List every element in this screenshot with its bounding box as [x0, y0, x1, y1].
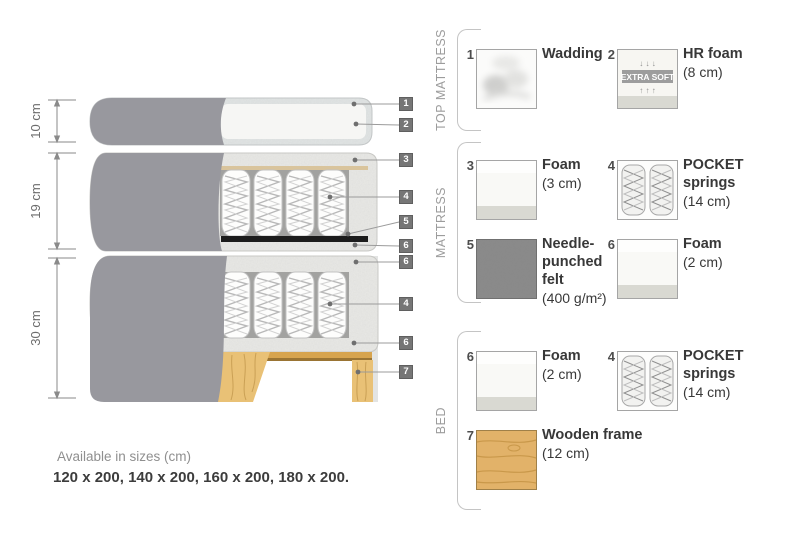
item-name: POCKET springs — [683, 347, 755, 383]
hr-foam-thumbnail: ↓ ↓ ↓ EXTRA SOFT ↑ ↑ ↑ — [617, 49, 678, 109]
dimension-lines — [48, 100, 76, 398]
marker-1: 1 — [399, 97, 413, 111]
marker-6b: 6 — [399, 255, 413, 269]
legend-num-6: 6 — [601, 237, 615, 252]
marker-6: 6 — [399, 239, 413, 253]
bed-layer — [90, 256, 378, 402]
mattress-top-foam-edge — [220, 166, 368, 170]
legend-num-6-bed: 6 — [460, 349, 474, 364]
item-name: HR foam — [683, 45, 755, 63]
marker-2: 2 — [399, 118, 413, 132]
legend-label-4-bed: POCKET springs (14 cm) — [683, 347, 755, 401]
infographic-page: { "note": { "line1": "Available in sizes… — [0, 0, 800, 533]
mattress-felt-bar — [221, 236, 368, 242]
sizes-note-values: 120 x 200, 140 x 200, 160 x 200, 180 x 2… — [53, 469, 349, 486]
sizes-note-title: Available in sizes (cm) — [57, 449, 191, 464]
item-detail: (14 cm) — [683, 383, 755, 401]
item-detail: (14 cm) — [683, 192, 755, 210]
item-detail: (2 cm) — [542, 365, 614, 383]
foam-thumbnail — [476, 351, 537, 411]
pocket-springs-thumbnail — [617, 351, 678, 411]
legend-num-2: 2 — [601, 47, 615, 62]
legend-num-3: 3 — [460, 158, 474, 173]
mattress-layer — [90, 153, 377, 251]
foam-thumbnail — [476, 160, 537, 220]
dimension-label-top-mattress: 10 cm — [28, 91, 44, 151]
item-name: POCKET springs — [683, 156, 755, 192]
section-title-text: MATTRESS — [434, 187, 448, 258]
legend-num-7: 7 — [460, 428, 474, 443]
wooden-frame-thumbnail — [476, 430, 537, 490]
item-name: Foam — [683, 235, 755, 253]
foam-thumbnail — [617, 239, 678, 299]
section-title-text: TOP MATTRESS — [434, 29, 448, 131]
legend-label-6: Foam (2 cm) — [683, 235, 755, 271]
marker-5: 5 — [399, 215, 413, 229]
felt-thumbnail — [476, 239, 537, 299]
item-name: Wooden frame — [542, 426, 702, 444]
legend-num-5: 5 — [460, 237, 474, 252]
marker-6c: 6 — [399, 336, 413, 350]
pocket-springs-thumbnail — [617, 160, 678, 220]
marker-7: 7 — [399, 365, 413, 379]
item-detail: (8 cm) — [683, 63, 755, 81]
soft-arrows-up-icon: ↑ ↑ ↑ — [639, 86, 655, 95]
section-title-text: BED — [434, 407, 448, 434]
section-title-top-mattress: TOP MATTRESS — [429, 29, 453, 131]
section-title-mattress: MATTRESS — [429, 142, 453, 303]
top-mattress-layer — [90, 98, 372, 145]
legend-label-7: Wooden frame (12 cm) — [542, 426, 702, 462]
item-detail: (3 cm) — [542, 174, 614, 192]
legend-num-4: 4 — [601, 158, 615, 173]
legend-label-4: POCKET springs (14 cm) — [683, 156, 755, 210]
legend-num-1: 1 — [460, 47, 474, 62]
wooden-frame-shape — [218, 352, 373, 402]
marker-4b: 4 — [399, 297, 413, 311]
extra-soft-badge-text: EXTRA SOFT — [621, 72, 675, 82]
soft-arrows-down-icon: ↓ ↓ ↓ — [639, 59, 655, 68]
section-title-bed: BED — [429, 331, 453, 510]
dimension-label-bed: 30 cm — [28, 298, 44, 358]
wadding-thumbnail — [476, 49, 537, 109]
dimension-label-mattress: 19 cm — [28, 171, 44, 231]
item-detail: (400 g/m²) — [542, 289, 614, 307]
item-detail: (2 cm) — [683, 253, 755, 271]
legend-label-2: HR foam (8 cm) — [683, 45, 755, 81]
item-detail: (12 cm) — [542, 444, 702, 462]
marker-4: 4 — [399, 190, 413, 204]
marker-3: 3 — [399, 153, 413, 167]
legend-num-4-bed: 4 — [601, 349, 615, 364]
